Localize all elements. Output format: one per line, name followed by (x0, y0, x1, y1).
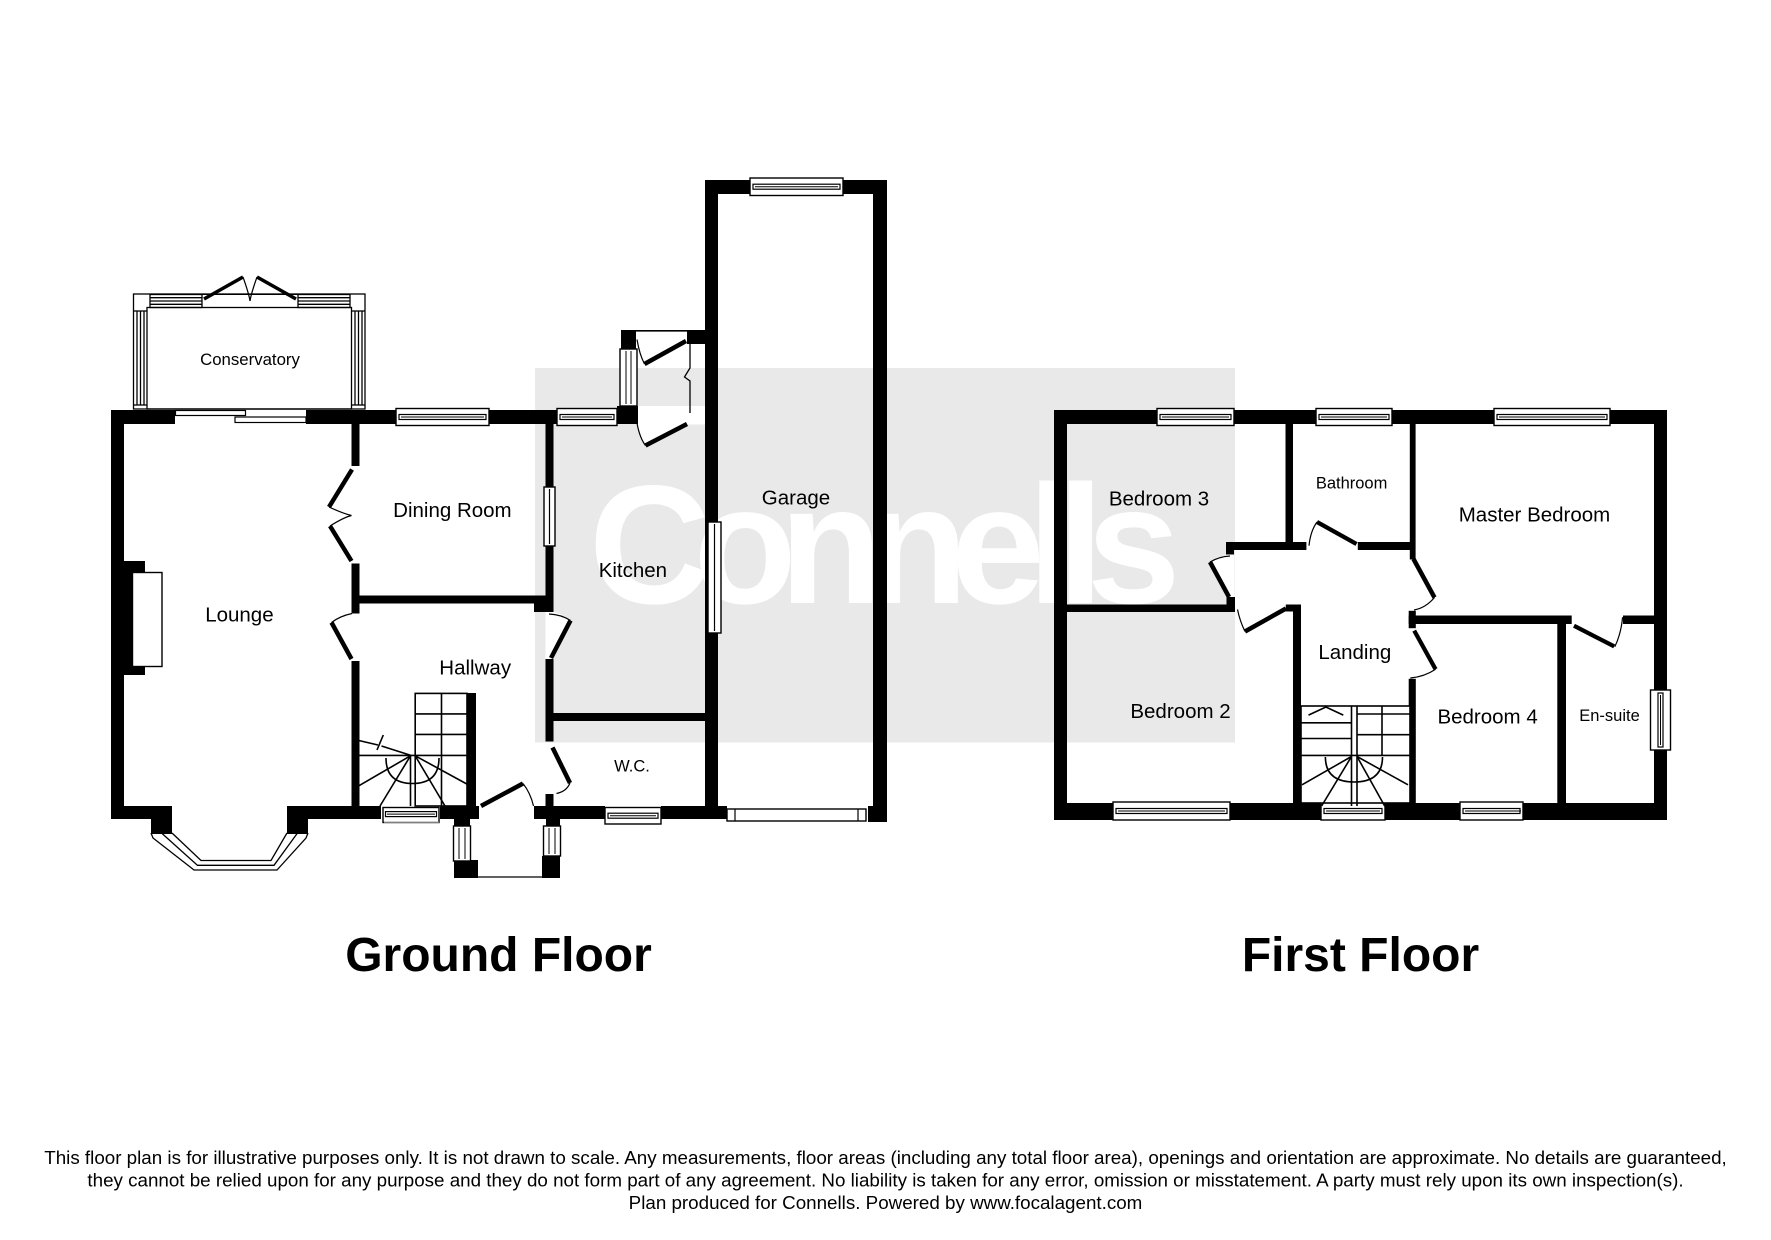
svg-text:Master Bedroom: Master Bedroom (1459, 504, 1611, 527)
svg-text:they cannot be relied upon for: they cannot be relied upon for any purpo… (87, 1170, 1683, 1191)
svg-text:En-suite: En-suite (1579, 707, 1640, 725)
svg-text:Landing: Landing (1318, 641, 1391, 664)
svg-text:Bathroom: Bathroom (1316, 475, 1388, 493)
svg-text:Hallway: Hallway (439, 657, 512, 680)
svg-text:Kitchen: Kitchen (599, 559, 667, 582)
svg-text:Plan produced for Connells. Po: Plan produced for Connells. Powered by w… (629, 1192, 1143, 1213)
svg-text:Ground Floor: Ground Floor (345, 929, 652, 982)
svg-text:This floor plan is for illustr: This floor plan is for illustrative purp… (44, 1147, 1727, 1168)
svg-text:Bedroom 4: Bedroom 4 (1437, 706, 1537, 729)
svg-text:Conservatory: Conservatory (200, 350, 300, 369)
svg-text:Bedroom 3: Bedroom 3 (1109, 488, 1209, 511)
svg-text:Bedroom 2: Bedroom 2 (1130, 700, 1230, 723)
svg-text:Garage: Garage (762, 487, 830, 510)
svg-text:First Floor: First Floor (1242, 929, 1479, 982)
svg-text:W.C.: W.C. (614, 758, 650, 776)
svg-text:Lounge: Lounge (205, 604, 273, 627)
svg-text:Dining Room: Dining Room (393, 499, 512, 522)
